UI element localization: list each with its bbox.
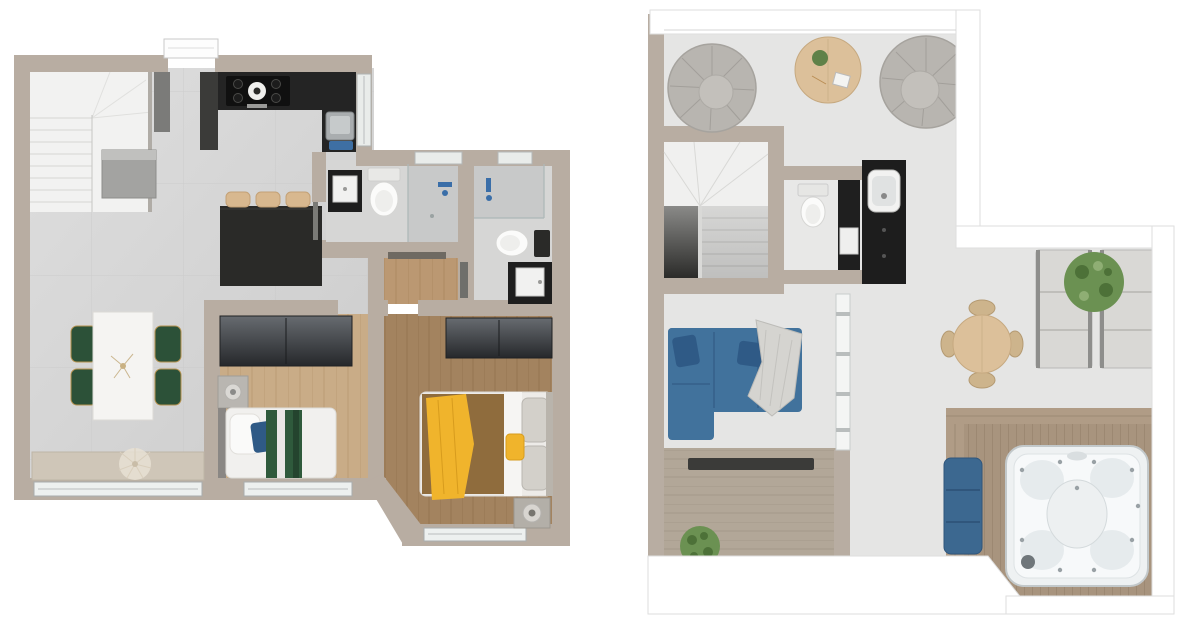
wicker-chair [969,300,995,316]
stair-2-rail [698,206,702,278]
bed-2-pillow [522,398,548,442]
bathroom-1-window [415,152,462,164]
kitchen-sink-basin [330,116,350,134]
shower-2-fixture [486,178,491,192]
bed-2-headboard [546,392,553,496]
lower-floor-plan [14,39,570,546]
floor-plans-svg [0,0,1200,627]
bar-stools [226,192,310,207]
tall-cabinet [154,72,170,132]
wall-living-right-low [834,450,850,556]
wall-wc-bottom [784,270,862,284]
hot-tub-speaker [1021,555,1035,569]
toilet-2-tank [534,230,550,257]
cooktop-center-knob [254,88,261,95]
bar-stool [256,192,280,207]
bar-sink-basin [872,176,896,206]
wall-top-left [14,55,168,72]
wall-left [14,55,30,500]
toilet-2-seat [500,235,520,251]
terrace-shrub [1064,252,1124,312]
floor-plan-image [0,0,1200,627]
bar-detail-dot [882,254,886,258]
wall-bedroom1-right [368,250,384,486]
bedroom-1-lamp-top [230,389,236,395]
wc-toilet-tank [798,184,828,196]
wicker-chair [969,372,995,388]
parapet-bottom-left [648,556,1034,614]
wall-top-right [215,55,372,72]
bar-stool [286,192,310,207]
bed-2-yellow-pillow [506,434,524,460]
bathroom-1-door [313,202,318,240]
bathroom-2-faucet [538,280,542,284]
wall-between-baths [458,150,474,258]
parapet-notch-vertical [956,10,980,248]
upper-floor-plan [648,10,1174,614]
dried-plant [119,448,151,480]
shower-fixture [438,182,452,187]
bathroom-2-door [460,262,468,298]
tv-bench [688,458,814,470]
bar-detail-dot [882,228,886,232]
wc-toilet-seat [806,204,821,224]
pouf-1-cushion [699,75,733,109]
bed-1-blanket-stripe [277,410,285,478]
hot-tub-control [1067,452,1087,461]
dining-chair [155,326,181,362]
wc-towel-holder [840,228,858,254]
wall-bedrooms-top-a [204,300,338,316]
stair-2-dark-run [664,206,700,278]
wall-right [552,150,570,546]
toilet-seat [375,190,393,212]
coffee-table-plant [812,50,828,66]
hot-tub-footwell [1047,480,1107,548]
bedroom-2-lamp-top [529,510,536,517]
sofa-pillow [672,334,701,368]
bar-faucet [881,193,887,199]
wet-bar [862,160,906,284]
kitchen-island [220,206,322,286]
bathroom-1-drain [343,187,347,191]
wall-wc-top [784,166,862,180]
bar-stool [226,192,250,207]
stair-2-shade [700,206,768,278]
bathroom-1-shower-floor [408,164,458,244]
shower-drain [430,214,434,218]
entry-hall-floor [384,258,458,304]
storage-box-top [102,150,156,160]
bed-2-pillow [522,446,548,490]
living-glass-wall [836,294,850,450]
wall-bath1-left-a [312,152,326,202]
wall-stair-bottom [648,278,784,294]
spa-bench [944,458,982,554]
parapet-bottom-right [1006,596,1174,614]
window-bench [32,452,204,480]
toilet-tank [368,168,400,181]
wc-black-unit [838,180,860,270]
dining-chair [155,369,181,405]
shower-head [442,190,448,196]
bathroom-2-window [498,152,532,164]
entry-door [388,252,446,259]
pouf-2-cushion [901,71,939,109]
bed-1-headboard [218,408,226,478]
bed-1-blanket-stripe-dark [293,410,299,478]
bathroom-2-shower-floor [474,164,544,218]
parapet-right [1152,226,1174,614]
black-column-cabinet [200,72,218,150]
sink-mat [329,141,353,150]
shower-2-head [486,195,492,201]
wall-stair-right [768,126,784,294]
oven-handle [247,104,267,108]
parapet-notch-horizontal [956,226,1174,248]
